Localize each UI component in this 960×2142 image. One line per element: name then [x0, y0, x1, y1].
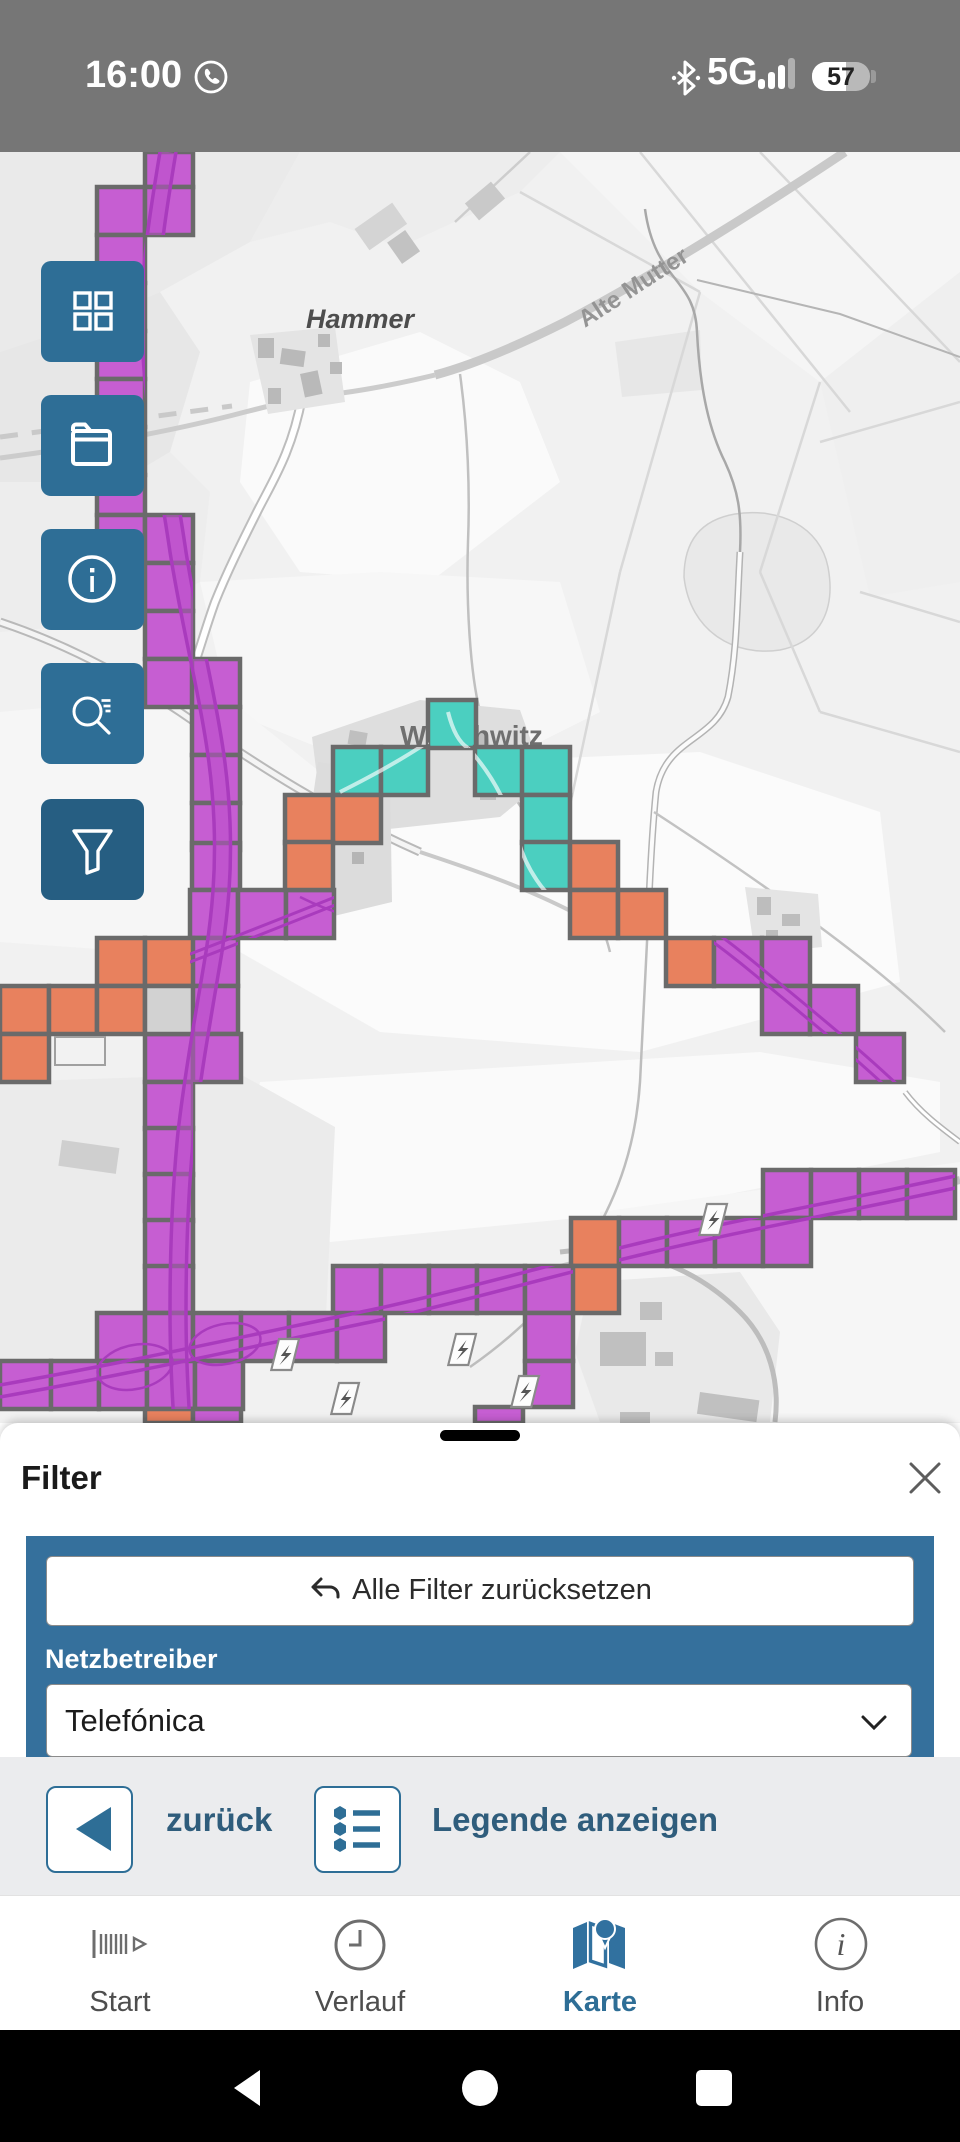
svg-text:Hammer: Hammer — [306, 304, 416, 334]
svg-text:i: i — [837, 1926, 846, 1962]
